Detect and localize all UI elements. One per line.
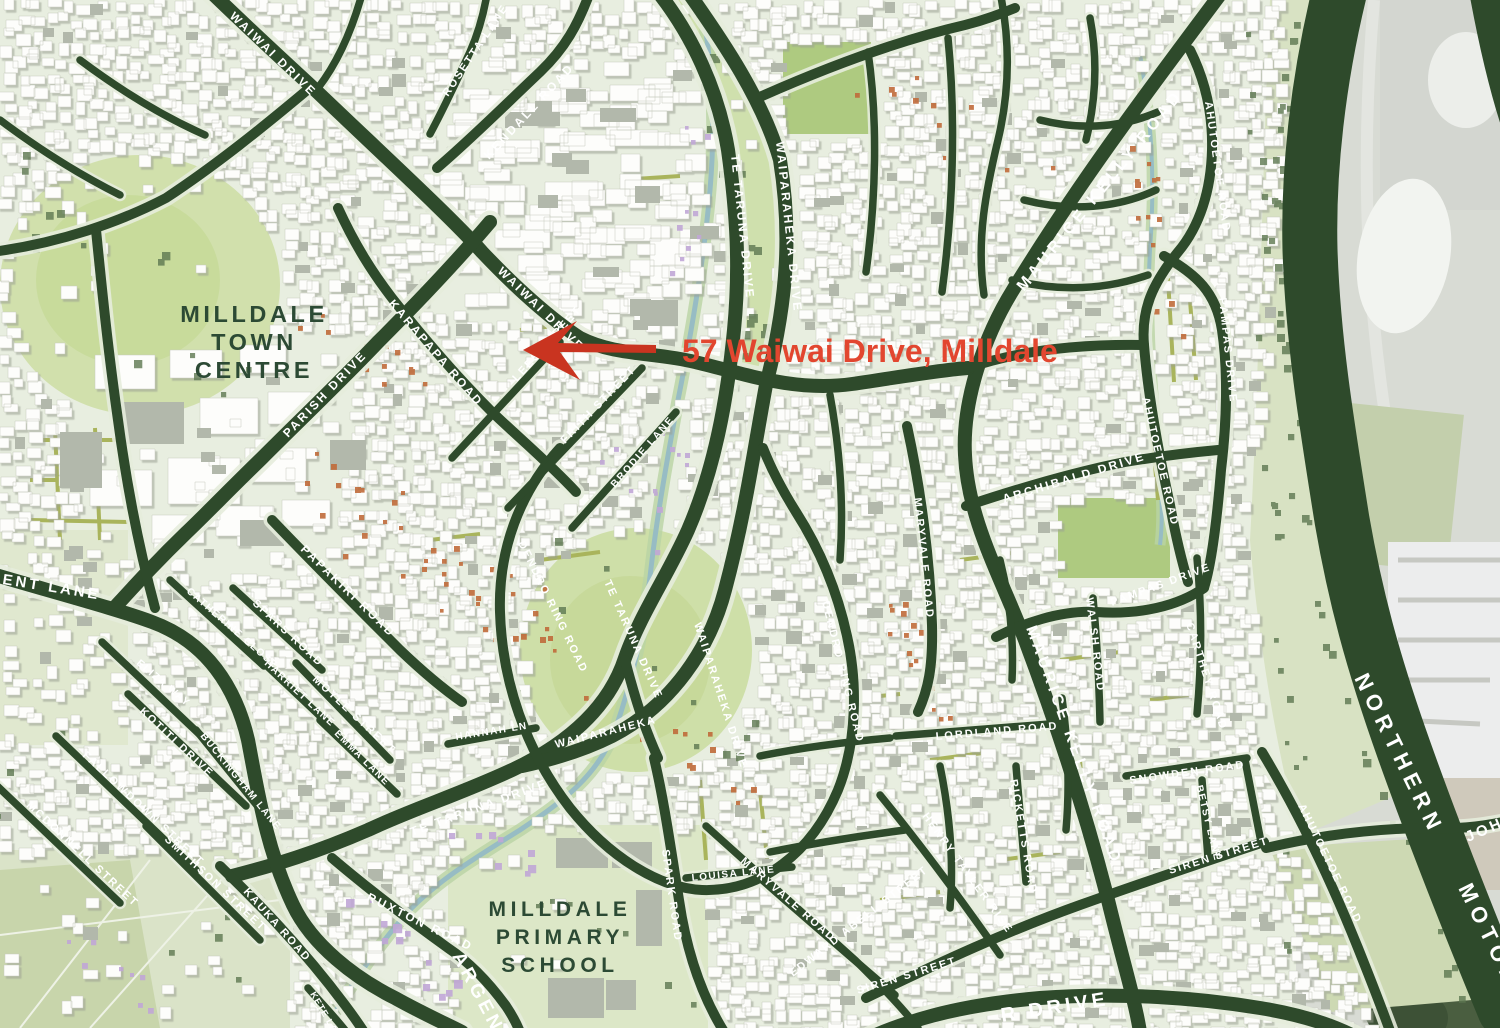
svg-text:SCHOOL: SCHOOL <box>501 954 618 977</box>
svg-text:CENTRE: CENTRE <box>195 357 313 383</box>
svg-text:MILLDALE: MILLDALE <box>180 301 328 327</box>
svg-text:PRIMARY: PRIMARY <box>496 926 624 949</box>
svg-text:57 Waiwai Drive, Milldale: 57 Waiwai Drive, Milldale <box>682 333 1058 369</box>
svg-text:TOWN: TOWN <box>211 329 297 355</box>
svg-text:MILLDALE: MILLDALE <box>489 898 632 921</box>
